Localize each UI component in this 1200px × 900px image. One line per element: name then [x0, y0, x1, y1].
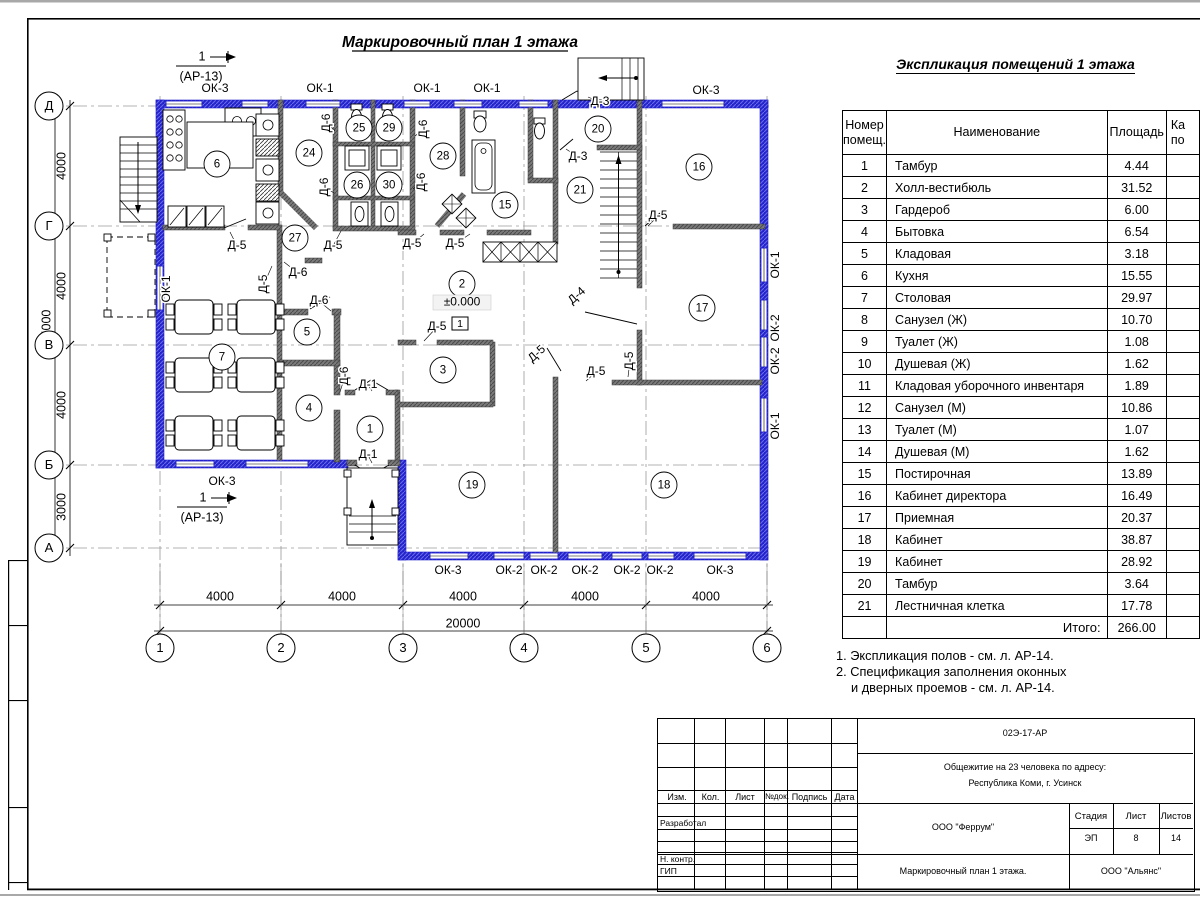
- plan-text: 16: [693, 162, 706, 174]
- plan-text: 5: [642, 640, 649, 655]
- table-row: 14Душевая (М)1.62: [843, 441, 1200, 463]
- table-cell: 17: [843, 507, 887, 529]
- table-cell: 10.70: [1107, 309, 1166, 331]
- window-label: ОК-2: [572, 563, 599, 577]
- table-cell: Кабинет: [887, 551, 1108, 573]
- table-cell: Кладовая: [887, 243, 1108, 265]
- table-row: 3Гардероб6.00: [843, 199, 1200, 221]
- table-cell: Тамбур: [887, 155, 1108, 177]
- table-cell: 1.89: [1107, 375, 1166, 397]
- table-row: 9Туалет (Ж)1.08: [843, 331, 1200, 353]
- table-cell: Туалет (М): [887, 419, 1108, 441]
- table-cell: Столовая: [887, 287, 1108, 309]
- table-row: 1Тамбур4.44: [843, 155, 1200, 177]
- table-cell: 1: [843, 155, 887, 177]
- plan-text: Д: [45, 98, 54, 113]
- sheet-title: Маркировочный план 1 этажа.: [857, 866, 1069, 876]
- table-cell: 3.18: [1107, 243, 1166, 265]
- table-row: 20Тамбур3.64: [843, 573, 1200, 595]
- sheet-label: Лист: [1113, 811, 1159, 822]
- plan-text: 4000: [54, 272, 68, 300]
- sheets-label: Листов: [1159, 811, 1193, 822]
- doc-code: 02Э-17-АР: [857, 728, 1193, 738]
- table-row: 15Постирочная13.89: [843, 463, 1200, 485]
- explication-title: Экспликация помещений 1 этажа: [843, 56, 1188, 72]
- table-cell: Приемная: [887, 507, 1108, 529]
- door-label: Д-6: [414, 172, 428, 191]
- table-cell: Санузел (М): [887, 397, 1108, 419]
- table-row: 11Кладовая уборочного инвентаря1.89: [843, 375, 1200, 397]
- door-label: Д-6: [319, 113, 333, 132]
- table-cell: 6.54: [1107, 221, 1166, 243]
- note-line: и дверных проемов - см. л. АР-14.: [836, 680, 1066, 696]
- table-cell: 4.44: [1107, 155, 1166, 177]
- sheets-value: 14: [1159, 833, 1193, 843]
- table-cell: [1166, 507, 1199, 529]
- plan-text: 27: [289, 233, 302, 245]
- table-cell: 38.87: [1107, 529, 1166, 551]
- plan-title: Маркировочный план 1 этажа: [342, 34, 578, 51]
- plan-text: 1: [199, 49, 206, 63]
- window-label: ОК-3: [435, 563, 462, 577]
- door-label: Д-5: [228, 238, 247, 252]
- table-row: 7Столовая29.97: [843, 287, 1200, 309]
- plan-text: 6: [214, 159, 220, 171]
- table-cell: [1166, 419, 1199, 441]
- window-label: ОК-3: [693, 83, 720, 97]
- explication-header: Наименование: [887, 111, 1108, 155]
- table-cell: [1166, 287, 1199, 309]
- table-cell: 20: [843, 573, 887, 595]
- table-cell: 29.97: [1107, 287, 1166, 309]
- plan-text: 3: [399, 640, 406, 655]
- plan-text: 1: [457, 318, 463, 330]
- table-cell: 3: [843, 199, 887, 221]
- plan-text: В: [45, 337, 54, 352]
- plan-text: ±0.000: [444, 295, 481, 309]
- table-cell: [1166, 199, 1199, 221]
- project-line1: Общежитие на 23 человека по адресу:: [857, 762, 1193, 772]
- plan-text: 4000: [54, 391, 68, 419]
- table-cell: [1166, 265, 1199, 287]
- door-label: Д-5: [446, 236, 465, 250]
- table-cell: 10: [843, 353, 887, 375]
- table-cell: Кабинет: [887, 529, 1108, 551]
- table-cell: Душевая (М): [887, 441, 1108, 463]
- plan-text: (АР-13): [179, 69, 222, 83]
- table-row: 5Кладовая3.18: [843, 243, 1200, 265]
- plan-text: А: [45, 540, 54, 555]
- table-cell: 21: [843, 595, 887, 617]
- window-label: ОК-1: [768, 251, 782, 278]
- table-cell: [1166, 177, 1199, 199]
- table-row: 4Бытовка6.54: [843, 221, 1200, 243]
- table-cell: 28.92: [1107, 551, 1166, 573]
- plan-text: 19: [466, 480, 479, 492]
- plan-text: 4: [306, 403, 313, 415]
- table-cell: 1.08: [1107, 331, 1166, 353]
- table-cell: [1166, 243, 1199, 265]
- plan-text: Г: [45, 218, 52, 233]
- table-cell: [1166, 221, 1199, 243]
- explication-header: Капо: [1166, 111, 1199, 155]
- explication-header: Площадь: [1107, 111, 1166, 155]
- table-cell: 10.86: [1107, 397, 1166, 419]
- table-cell: Кабинет директора: [887, 485, 1108, 507]
- table-cell: Лестничная клетка: [887, 595, 1108, 617]
- plan-text: Б: [45, 457, 54, 472]
- plan-text: 4000: [692, 589, 720, 603]
- door-label: Д-3: [591, 94, 610, 108]
- table-cell: 18: [843, 529, 887, 551]
- plan-text: 17: [696, 303, 709, 315]
- plan-text: 30: [383, 180, 396, 192]
- table-cell: [1166, 573, 1199, 595]
- table-cell: Кладовая уборочного инвентаря: [887, 375, 1108, 397]
- plan-text: 4: [520, 640, 527, 655]
- plan-text: 15: [499, 200, 512, 212]
- door-label: Д-6: [310, 293, 329, 307]
- titleblock-col-3: №док.: [765, 792, 787, 801]
- window-label: ОК-2: [496, 563, 523, 577]
- door-label: Д-5: [649, 208, 668, 222]
- titleblock-row-developed: Разработал: [660, 818, 724, 828]
- plan-text: 29: [383, 123, 396, 135]
- plan-text: 20000: [446, 616, 481, 630]
- door-label: Д-5: [256, 274, 270, 293]
- titleblock-col-2: Лист: [727, 792, 763, 802]
- plan-text: 4000: [206, 589, 234, 603]
- sheet-value: 8: [1113, 833, 1159, 843]
- titleblock-row-gip: ГИП: [660, 866, 724, 876]
- door-label: Д-5: [622, 351, 636, 370]
- table-cell: Тамбур: [887, 573, 1108, 595]
- table-cell: 7: [843, 287, 887, 309]
- table-cell: Бытовка: [887, 221, 1108, 243]
- explication-header: Номерпомещ.: [843, 111, 887, 155]
- titleblock-col-1: Кол.: [696, 792, 725, 802]
- table-cell: 16: [843, 485, 887, 507]
- window-label: ОК-1: [474, 81, 501, 95]
- plan-text: 21: [574, 185, 587, 197]
- table-cell: 13: [843, 419, 887, 441]
- table-row: 16Кабинет директора16.49: [843, 485, 1200, 507]
- explication-table: Номерпомещ.НаименованиеПлощадьКапо1Тамбу…: [842, 110, 1200, 639]
- table-cell: [1166, 397, 1199, 419]
- door-label: Д-6: [416, 119, 430, 138]
- table-cell: [1166, 595, 1199, 617]
- table-cell: 12: [843, 397, 887, 419]
- door-label: Д-6: [337, 366, 351, 385]
- table-row: 13Туалет (М)1.07: [843, 419, 1200, 441]
- plan-title: Маркировочный план 1 этажа: [342, 34, 578, 51]
- titleblock-row-ncontr: Н. контр.: [660, 854, 724, 864]
- table-cell: 11: [843, 375, 887, 397]
- plan-text: (АР-13): [180, 510, 223, 524]
- window-label: ОК-1: [768, 412, 782, 439]
- table-cell: 1.07: [1107, 419, 1166, 441]
- plan-text: 4000: [54, 152, 68, 180]
- table-cell: 6: [843, 265, 887, 287]
- titleblock-col-5: Дата: [833, 792, 856, 802]
- table-cell: 31.52: [1107, 177, 1166, 199]
- table-cell: 20.37: [1107, 507, 1166, 529]
- table-cell: [1166, 309, 1199, 331]
- plan-text: 24: [303, 148, 316, 160]
- window-label: ОК-3: [209, 474, 236, 488]
- door-label: Д-1: [359, 447, 378, 461]
- note-line: 2. Спецификация заполнения оконных: [836, 664, 1066, 680]
- door-label: Д-4: [565, 284, 589, 307]
- table-cell: 1.62: [1107, 441, 1166, 463]
- window-label: ОК-2: [531, 563, 558, 577]
- door-label: Д-5: [324, 238, 343, 252]
- plan-text: 4000: [571, 589, 599, 603]
- door-label: Д-5: [587, 364, 606, 378]
- table-cell: Постирочная: [887, 463, 1108, 485]
- plan-text: 4000: [328, 589, 356, 603]
- door-label: Д-1: [359, 377, 378, 391]
- door-label: Д-5: [403, 236, 422, 250]
- table-cell: 19: [843, 551, 887, 573]
- plan-text: 3: [440, 365, 446, 377]
- table-cell: Холл-вестибюль: [887, 177, 1108, 199]
- plan-text: 25: [353, 123, 366, 135]
- table-cell: 6.00: [1107, 199, 1166, 221]
- table-cell: 13.89: [1107, 463, 1166, 485]
- explication-body: Номерпомещ.НаименованиеПлощадьКапо1Тамбу…: [843, 111, 1200, 639]
- notes: 1. Экспликация полов - см. л. АР-14. 2. …: [836, 648, 1066, 696]
- table-cell: 1.62: [1107, 353, 1166, 375]
- table-cell: [1166, 441, 1199, 463]
- window-label: ОК-2: [768, 347, 782, 374]
- table-cell: [1166, 353, 1199, 375]
- plan-text: 7: [219, 352, 225, 364]
- table-row: 21Лестничная клетка17.78: [843, 595, 1200, 617]
- table-cell: 5: [843, 243, 887, 265]
- door-label: Д-5: [428, 319, 447, 333]
- project-line2: Республика Коми, г. Усинск: [857, 778, 1193, 788]
- table-cell: 16.49: [1107, 485, 1166, 507]
- table-cell: [1166, 155, 1199, 177]
- plan-text: 6: [763, 640, 770, 655]
- plan-text: 26: [351, 180, 364, 192]
- window-label: ОК-3: [707, 563, 734, 577]
- table-row: 12Санузел (М)10.86: [843, 397, 1200, 419]
- table-row: 17Приемная20.37: [843, 507, 1200, 529]
- table-row: 2Холл-вестибюль31.52: [843, 177, 1200, 199]
- stage-label: Стадия: [1069, 811, 1113, 822]
- titleblock-col-0: Изм.: [660, 792, 694, 802]
- table-cell: 17.78: [1107, 595, 1166, 617]
- table-cell: Санузел (Ж): [887, 309, 1108, 331]
- table-cell: [1166, 485, 1199, 507]
- title-block: Изм.Кол.Лист№док.ПодписьДатаРазработалН.…: [657, 718, 1195, 892]
- table-row: 8Санузел (Ж)10.70: [843, 309, 1200, 331]
- table-cell: Туалет (Ж): [887, 331, 1108, 353]
- table-cell: 3.64: [1107, 573, 1166, 595]
- titleblock-col-4: Подпись: [789, 792, 830, 802]
- plan-text: 5: [304, 327, 310, 339]
- plan-text: 28: [437, 151, 450, 163]
- door-label: Д-3: [569, 149, 588, 163]
- drawing-sheet: { "colors": { "wall_blue": "#2323cd", "w…: [0, 0, 1200, 900]
- plan-text: 2: [459, 279, 465, 291]
- plan-text: 20: [592, 124, 605, 136]
- table-cell: [1166, 463, 1199, 485]
- table-row: 19Кабинет28.92: [843, 551, 1200, 573]
- total-label: Итого:: [887, 617, 1108, 639]
- table-row: 10Душевая (Ж)1.62: [843, 353, 1200, 375]
- table-cell: [1166, 551, 1199, 573]
- table-cell: 4: [843, 221, 887, 243]
- table-cell: [1166, 375, 1199, 397]
- plan-text: 2: [277, 640, 284, 655]
- window-label: ОК-2: [768, 314, 782, 341]
- total-row: Итого:266.00: [843, 617, 1200, 639]
- plan-text: 1: [156, 640, 163, 655]
- window-label: ОК-2: [614, 563, 641, 577]
- table-cell: 9: [843, 331, 887, 353]
- plan-text: 3000: [54, 493, 68, 521]
- table-cell: Кухня: [887, 265, 1108, 287]
- window-label: ОК-1: [414, 81, 441, 95]
- door-label: Д-6: [317, 177, 331, 196]
- table-cell: Душевая (Ж): [887, 353, 1108, 375]
- plan-text: 1: [367, 424, 373, 436]
- table-cell: 2: [843, 177, 887, 199]
- plan-text: 4000: [449, 589, 477, 603]
- table-cell: 15.55: [1107, 265, 1166, 287]
- table-cell: 8: [843, 309, 887, 331]
- note-line: 1. Экспликация полов - см. л. АР-14.: [836, 648, 1066, 664]
- table-cell: [1166, 529, 1199, 551]
- table-row: 6Кухня15.55: [843, 265, 1200, 287]
- plan-text: 1: [200, 490, 207, 504]
- table-cell: 14: [843, 441, 887, 463]
- org-alyans: ООО "Альянс": [1069, 866, 1193, 876]
- window-label: ОК-2: [647, 563, 674, 577]
- total-value: 266.00: [1107, 617, 1166, 639]
- org-ferrum: ООО "Феррум": [857, 822, 1069, 832]
- table-cell: [1166, 331, 1199, 353]
- table-cell: Гардероб: [887, 199, 1108, 221]
- window-label: ОК-1: [307, 81, 334, 95]
- window-label: ОК-1: [159, 275, 173, 302]
- table-row: 18Кабинет38.87: [843, 529, 1200, 551]
- plan-text: 18: [658, 480, 671, 492]
- door-label: Д-6: [289, 265, 308, 279]
- stage-value: ЭП: [1069, 833, 1113, 843]
- table-cell: 15: [843, 463, 887, 485]
